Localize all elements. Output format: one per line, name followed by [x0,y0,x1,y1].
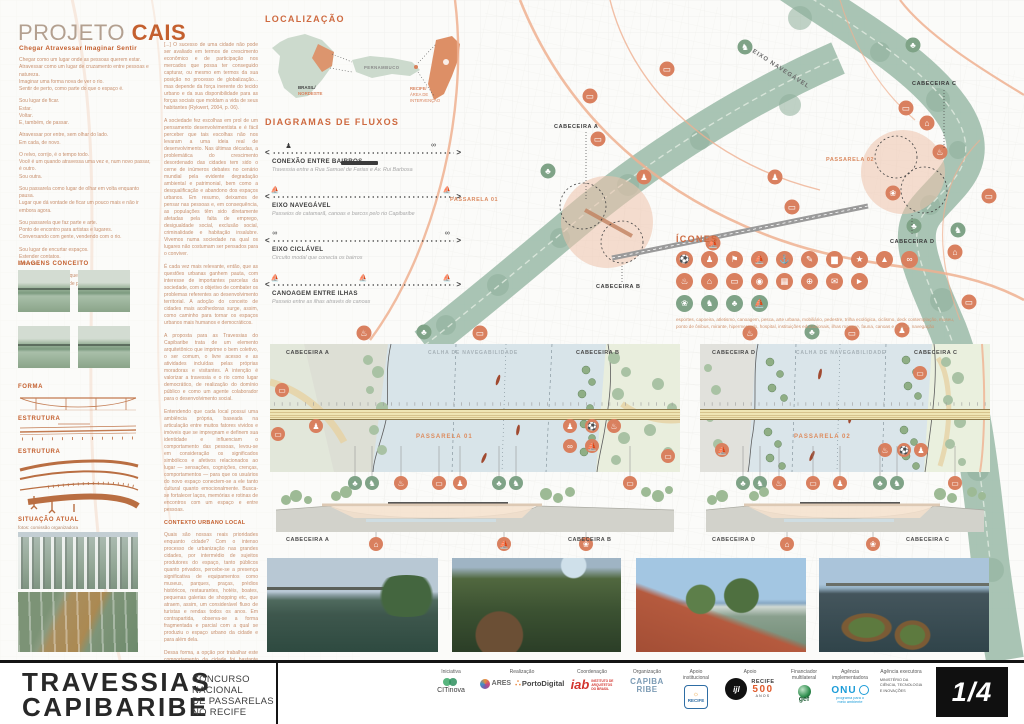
svg-text:PASSARELA 01: PASSARELA 01 [416,434,473,440]
competition-board: PERNAMBUCO BRASIL/ NORDESTE RECIFE/ ÁREA… [0,0,1024,724]
hospital-icon: ⊕ [801,273,818,290]
svg-text:⛵: ⛵ [717,445,727,455]
svg-text:♣: ♣ [352,479,358,488]
svg-text:▭: ▭ [902,103,910,113]
render-photo-deck [452,558,621,652]
render-photo-promenade [636,558,806,652]
atletismo-icon: ⚑ [726,251,743,268]
poem-stanza: O relvo, corrijo, é o tempo todo. Você é… [19,152,153,181]
recife-sun-icon: ☼ [693,691,699,698]
title-light: PROJETO [18,20,125,45]
canoas-icon: ⛵ [751,295,768,312]
ijl-logo: ijl [725,678,747,700]
svg-text:♞: ♞ [512,479,519,488]
flux-dotted-line [272,196,454,198]
citinova-logo: CITinova [437,678,465,694]
portodigital-logo: ∴ PortoDigital [515,678,564,689]
svg-text:▭: ▭ [278,386,286,395]
brasil-label: BRASIL/ [298,85,316,90]
icones-heading: ÍCONES [676,234,968,244]
svg-text:CABECEIRA A: CABECEIRA A [286,537,329,543]
icon-row: ⚽♟⚑⛵⚓✎▆★▲∞ [676,251,968,268]
flux-item: ⛵⛵EIXO NAVEGÁVELPasseios de catamarã, ca… [265,186,461,230]
situacao-atual-label: SITUAÇÃO ATUAL [18,517,79,523]
flux-icon: ∞ [272,230,277,237]
svg-text:♞: ♞ [368,479,375,488]
svg-text:▭: ▭ [985,191,993,201]
svg-text:▭: ▭ [626,479,634,488]
footer-subtitle: CONCURSONACIONAL DE PASSARELASNO RECIFE [192,674,274,718]
footer: TRAVESSIAS CAPIBARIBE CONCURSONACIONAL D… [0,663,1024,724]
svg-text:▭: ▭ [586,91,594,101]
svg-text:CABECEIRA B: CABECEIRA B [576,350,620,356]
svg-text:CABECEIRA C: CABECEIRA C [906,537,950,543]
localizacao-heading: LOCALIZAÇÃO [265,14,345,24]
page-number: 1/4 [936,667,1008,717]
ares-logo: ARES [480,679,511,689]
essay-paragraph: A proposta para as Travessias do Capibar… [164,333,258,403]
svg-text:▭: ▭ [809,479,817,488]
svg-text:▭: ▭ [274,430,282,439]
footer-group-financiador: Financiador multilateral gef [784,669,824,703]
svg-text:♟: ♟ [566,422,573,431]
flux-item: ⛵⛵⛵CANOAGEM ENTRE ILHASPasseio entre as … [265,274,461,318]
flux-icon: ⛵ [270,274,279,282]
svg-text:⛵: ⛵ [499,539,509,549]
estrutura-label-1: ESTRUTURA [18,416,60,422]
flux-desc: Passeio entre as ilhas através de canoas [272,299,370,305]
svg-text:❀: ❀ [889,188,897,198]
svg-text:⌂: ⌂ [924,118,929,128]
svg-text:♣: ♣ [911,221,917,231]
cabeceira-b-label: CABECEIRA B [596,284,641,290]
mirante-icon: ◉ [751,273,768,290]
essay-paragraph: A sociedade fez escolhas em prol de um p… [164,118,258,258]
flux-icon: ⛵ [443,274,452,282]
icon-row: ❀♞♣⛵ [676,295,968,312]
svg-text:♨: ♨ [936,147,944,157]
prefeitura-recife-logo: ☼ RECIFE [684,685,708,709]
footer-divider [276,663,278,724]
render-photo-planters [819,558,989,652]
esportes-icon: ⚽ [676,251,693,268]
concept-photo [78,326,130,368]
nordeste-label: NORDESTE [298,91,322,96]
svg-text:♞: ♞ [741,42,749,52]
flux-legend: ♟∞CONEXÃO ENTRE BAIRROSTravessia entre a… [265,142,461,318]
fauna-icon: ♞ [701,295,718,312]
svg-text:▭: ▭ [788,202,796,212]
svg-text:♟: ♟ [640,172,648,182]
svg-text:RECIFE/: RECIFE/ [410,86,427,91]
pedestre-icon: ★ [851,251,868,268]
footer-group-coordenacao: Coordenação iab INSTITUTO DE ARQUITETOSD… [566,669,618,691]
poem-stanza: Sou lugar de ficar. Estar. Voltar. E, ta… [19,98,153,127]
svg-text:⌂: ⌂ [374,540,379,549]
svg-text:▭: ▭ [663,64,671,74]
ciclismo-icon: ∞ [901,251,918,268]
flux-label: CANOAGEM ENTRE ILHAS [272,290,358,297]
mobiliario-icon: ▆ [826,251,843,268]
fluxos-heading: DIAGRAMAS DE FLUXOS [265,117,399,127]
svg-text:▭: ▭ [476,328,484,338]
flux-desc: Travessia entre a Rua Samuel de Farias e… [272,167,413,173]
flux-icon: ∞ [445,230,450,237]
svg-text:♞: ♞ [756,479,763,488]
flux-desc: Passeios de catamarã, canoas e barcos pe… [272,211,415,217]
icones-caption: esportes, capoeira, atletismo, canoagem,… [676,317,960,331]
poem-stanza: Atravessar por entre, sem olhar do lado.… [19,132,153,147]
svg-text:⌂: ⌂ [785,540,790,549]
recife-500-logo: RECIFE 500 ANOS [751,680,774,699]
svg-text:♨: ♨ [775,479,782,488]
onu-globe-icon [859,685,869,695]
svg-text:CABECEIRA D: CABECEIRA D [712,537,756,543]
footer-title-line2: CAPIBARIBE [22,695,211,720]
poem-stanza: Chegar como um lugar onde as pessoas que… [19,57,153,93]
estrutura-sketch-2 [18,456,140,514]
svg-text:♣: ♣ [877,479,883,488]
onu-meio-ambiente-logo: ONU programa para o meio ambiente [831,685,868,705]
svg-text:⚽: ⚽ [898,445,909,455]
svg-text:♞: ♞ [893,479,900,488]
svg-text:♨: ♨ [360,328,368,338]
porto-dots-icon: ∴ [515,678,521,689]
cabeceira-a-label: CABECEIRA A [554,124,598,130]
svg-text:CALHA DE NAVEGABILIDADE: CALHA DE NAVEGABILIDADE [428,350,518,356]
svg-text:CABECEIRA A: CABECEIRA A [286,350,329,356]
ilhas-mangue-icon: ❀ [676,295,693,312]
flux-icon: ⛵ [359,274,368,282]
contexto-heading: CONTEXTO URBANO LOCAL [164,520,258,528]
svg-text:INTERVENÇÃO: INTERVENÇÃO [410,98,441,103]
svg-text:❀: ❀ [870,540,877,549]
plan-passarela-01: CABECEIRA A CALHA DE NAVEGABILIDADE CABE… [270,338,680,553]
svg-text:♟: ♟ [836,479,843,488]
forma-label: FORMA [18,384,43,390]
essay-paragraph: [...] O sucesso de uma cidade não pode s… [164,42,258,112]
flux-icon: ∞ [431,142,436,149]
essay-paragraph: Quais são nossas reais prioridades enqua… [164,532,258,644]
imagens-conceito-label: IMAGENS CONCEITO [18,261,89,267]
iab-logo: iab INSTITUTO DE ARQUITETOSDO BRASIL [571,678,614,691]
svg-text:♣: ♣ [496,479,502,488]
essay-paragraph: Entendendo que cada local possui uma amb… [164,409,258,514]
deck-contemplacao-icon: ♨ [676,273,693,290]
pernambuco-label: PERNAMBUCO [364,65,400,70]
poem-stanza: Sou passarela que faz parte e arte. Pont… [19,220,153,242]
navegacao-icon: ► [851,273,868,290]
concept-photo [18,270,70,312]
icon-row: ♨⌂▭◉▦⊕✉► [676,273,968,290]
ministerio-logo: MINISTÉRIO DA CIÊNCIA, TECNOLOGIA E INOV… [880,678,922,693]
flux-icon: ♟ [285,142,291,150]
essay-paragraph: Dessa forma, a opção por trabalhar este … [164,650,258,660]
svg-text:♣: ♣ [545,166,551,176]
arte-urbana-icon: ✎ [801,251,818,268]
parque-capibaribe-logo: CAPIBARIBE [628,678,666,693]
svg-text:♟: ♟ [312,422,319,431]
title-subtitle: Chegar Atravessar Imaginar Sentir [19,45,137,52]
citinova-dots-icon [442,678,460,686]
estrutura-label-2: ESTRUTURA [18,449,60,455]
svg-text:♟: ♟ [917,446,924,455]
museu-icon: ⌂ [701,273,718,290]
svg-text:♨: ♨ [397,479,404,488]
poem-stanza: Sou passarela como lugar de olhar em vol… [19,186,153,215]
svg-text:PASSARELA 02: PASSARELA 02 [794,434,851,440]
plan-passarela-02: CABECEIRA D CALHA DE NAVEGABILIDADE CABE… [700,338,990,553]
flux-dotted-line [272,284,454,286]
page-title: PROJETO CAIS [18,20,186,46]
svg-text:CABECEIRA B: CABECEIRA B [568,537,612,543]
flux-icon: ⛵ [443,186,452,194]
svg-text:♣: ♣ [421,327,427,337]
canoagem-icon: ⛵ [751,251,768,268]
flux-dotted-line [272,152,454,154]
flux-icon: ⛵ [270,186,279,194]
flux-desc: Circuito modal que conecta os bairros [272,255,363,261]
svg-text:ÁREA DE: ÁREA DE [410,92,428,97]
ares-mark-icon [480,679,490,689]
svg-text:▭: ▭ [916,369,924,378]
concept-photo [78,270,130,312]
svg-text:▭: ▭ [664,452,672,461]
instituicoes-educacionais-icon: ✉ [826,273,843,290]
svg-text:CABECEIRA D: CABECEIRA D [712,350,756,356]
flux-item: ∞∞EIXO CICLÁVELCircuito modal que conect… [265,230,461,274]
passarela-02-label: PASSARELA 02 [826,157,874,163]
vegetacao-icon: ♣ [726,295,743,312]
flux-item: ♟∞CONEXÃO ENTRE BAIRROSTravessia entre a… [265,142,461,186]
gef-logo: gef [798,685,811,703]
svg-text:♣: ♣ [910,40,916,50]
icones-section: ÍCONES ⚽♟⚑⛵⚓✎▆★▲∞♨⌂▭◉▦⊕✉►❀♞♣⛵ esportes, … [676,234,968,331]
render-photo-bridge [267,558,438,652]
svg-text:CALHA DE NAVEGABILIDADE: CALHA DE NAVEGABILIDADE [796,350,886,356]
svg-text:▭: ▭ [435,479,443,488]
svg-text:♣: ♣ [740,479,746,488]
svg-text:⛵: ⛵ [587,441,597,451]
hipermercado-icon: ▦ [776,273,793,290]
footer-group-apoio-institucional: Apoio institucional ☼ RECIFE [676,669,716,709]
svg-text:♨: ♨ [881,446,888,455]
flux-label: EIXO CICLÁVEL [272,246,323,253]
essay-paragraph: É cada vez mais relevante, então, que as… [164,264,258,327]
situacao-photo-river [18,592,138,652]
svg-text:⚽: ⚽ [586,421,597,431]
svg-text:♟: ♟ [456,479,463,488]
situacao-photo-city [18,532,138,589]
footer-group-apoio: Apoio ijl RECIFE 500 ANOS [718,669,782,700]
footer-title: TRAVESSIAS CAPIBARIBE [22,670,211,720]
essay-column: [...] O sucesso de uma cidade não pode s… [164,42,258,660]
svg-text:▭: ▭ [951,479,959,488]
svg-text:♟: ♟ [771,172,779,182]
footer-group-agencia-implementadora: Agência implementadora ONU programa para… [824,669,876,705]
svg-text:▭: ▭ [594,134,602,144]
trilha-ecologica-icon: ▲ [876,251,893,268]
cabeceira-c-label: CABECEIRA C [912,81,957,87]
pesca-icon: ⚓ [776,251,793,268]
ponto-de-onibus-icon: ▭ [726,273,743,290]
estrutura-sketch-1 [18,423,138,443]
footer-group-realizacao: Realização ARES ∴ PortoDigital [478,669,566,689]
capoeira-icon: ♟ [701,251,718,268]
svg-text:CABECEIRA C: CABECEIRA C [914,350,958,356]
footer-group-iniciativa: Iniciativa CITinova [424,669,478,694]
svg-text:♨: ♨ [610,422,617,431]
footer-group-agencia-executora: Agência executora MINISTÉRIO DA CIÊNCIA,… [876,669,926,694]
flux-label: CONEXÃO ENTRE BAIRROS [272,158,363,165]
footer-group-organizacao: Organização CAPIBARIBE [620,669,674,693]
svg-text:∞: ∞ [567,442,573,451]
photo-credit: fotos: comissão organizadora [18,525,78,530]
forma-sketch [18,391,138,413]
flux-label: EIXO NAVEGÁVEL [272,202,331,209]
concept-photo [18,326,70,368]
flux-dotted-line [272,240,454,242]
